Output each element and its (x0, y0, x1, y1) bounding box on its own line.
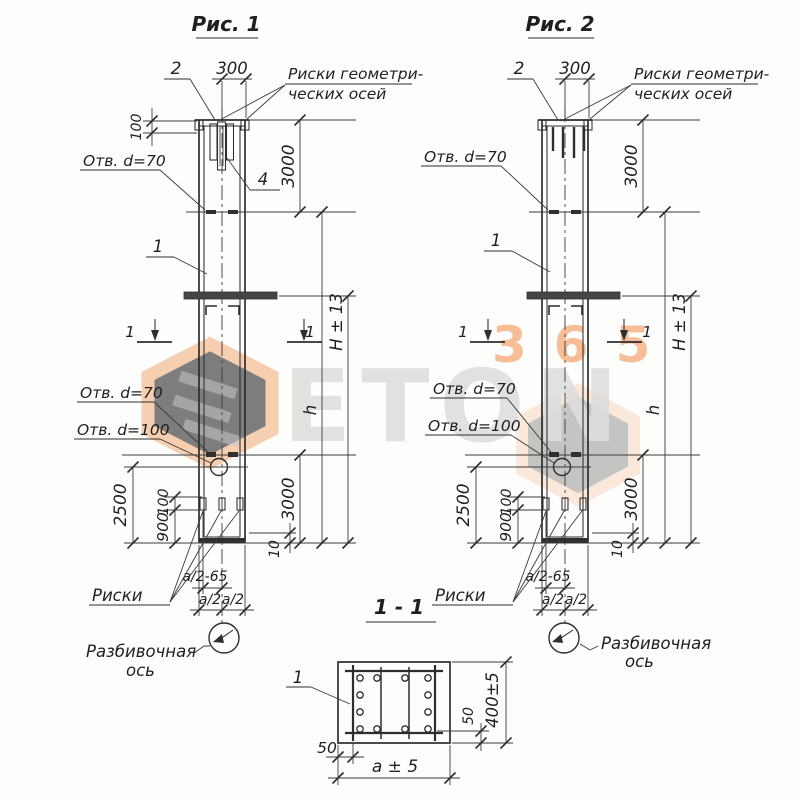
dim-3000-top: 3000 (279, 144, 299, 187)
dim-100-bottom: 100 (156, 489, 172, 516)
dim-H13: H ± 13 (327, 293, 346, 351)
dim-10: 10 (610, 540, 626, 558)
figure-1-layout-axis: Разбивочная ось (86, 623, 239, 680)
layout-axis-label-1: Разбивочная (86, 642, 196, 661)
figure-2-hole-70-upper (529, 210, 700, 214)
risks-label: Риски (435, 586, 486, 605)
dim-a2-right: а/2 (565, 592, 587, 608)
brand-logo-icon (148, 344, 272, 462)
dim-h: h (644, 405, 663, 415)
risks-axes-line2: ческих осей (288, 85, 386, 103)
risks-label: Риски (92, 586, 143, 605)
dim-a: а ± 5 (372, 757, 418, 777)
dim-2500: 2500 (454, 483, 474, 526)
section-dims: 50 400±5 50 а ± 5 (317, 657, 513, 786)
section-title: 1 - 1 (366, 595, 436, 622)
dim-50-left: 50 (317, 739, 337, 757)
dim-a2-left: а/2 (199, 592, 221, 608)
figure-2-risk-marks (543, 498, 586, 510)
section-concrete-outline (338, 662, 450, 743)
pos-1-label: 1 (153, 237, 164, 256)
hole-70-bottom-label: Отв. d=70 (433, 380, 516, 398)
cut-mark-label: 1 (458, 323, 468, 341)
layout-axis-label-2: ось (625, 652, 654, 671)
pos-2-label: 2 (171, 59, 182, 79)
dim-3000-top: 3000 (622, 144, 642, 187)
risks-axes-line1: Риски геометри- (288, 65, 424, 83)
dim-400: 400±5 (483, 672, 502, 728)
drawing-canvas: ETON 365 Рис. 1 (0, 0, 800, 800)
dim-2500: 2500 (111, 483, 131, 526)
dim-100-top: 100 (129, 114, 145, 141)
risks-axes-line1: Риски геометри- (634, 65, 770, 83)
figure-2-layout-axis: Разбивочная ось (549, 623, 711, 671)
watermark: ETON 365 (148, 316, 677, 500)
section-rebar-cage (345, 665, 443, 741)
figure-1-hole-70-upper (186, 210, 356, 214)
dim-3000-bottom: 3000 (622, 477, 642, 520)
pos-1-label: 1 (491, 231, 502, 250)
dim-10: 10 (267, 540, 283, 558)
dim-100-bottom: 100 (499, 489, 515, 516)
figure-1: Рис. 1 (74, 12, 424, 680)
figure-1-dims-bottom: а/2-65 а/2 а/2 (182, 511, 254, 616)
section-callout-pos1: 1 (286, 668, 350, 704)
section-title-text: 1 - 1 (374, 595, 424, 619)
figure-2-title: Рис. 2 (525, 12, 594, 38)
dim-300: 300 (216, 59, 248, 78)
technical-drawing-sheet: ETON 365 Рис. 1 (0, 0, 800, 800)
dim-h: h (301, 405, 320, 415)
hole-70-bottom-label: Отв. d=70 (80, 384, 163, 402)
figure-2-dims-bottom: а/2-65 а/2 а/2 (525, 511, 597, 616)
figure-1-title-text: Рис. 1 (191, 12, 260, 36)
pos-4-label: 4 (258, 170, 269, 189)
dim-300: 300 (559, 59, 591, 78)
layout-axis-label-2: ось (126, 661, 155, 680)
pos-1-label: 1 (293, 668, 304, 687)
cut-mark-label: 1 (125, 323, 135, 341)
cut-mark-label: 1 (642, 323, 652, 341)
dim-H13: H ± 13 (670, 293, 689, 351)
pos-2-label: 2 (514, 59, 525, 79)
figure-2-top-dowel-bars (553, 127, 584, 158)
figure-1-section-cut-marks: 1 1 (125, 319, 322, 342)
dim-50-right: 50 (461, 707, 477, 725)
figure-2-ground-plate (527, 292, 620, 315)
hole-70-top-label: Отв. d=70 (424, 148, 507, 166)
dim-900: 900 (154, 512, 172, 542)
section-view-1-1: 1 - 1 1 (286, 595, 513, 785)
dim-a2-right: а/2 (222, 592, 244, 608)
figure-2-title-text: Рис. 2 (525, 12, 594, 36)
dim-3000-bottom: 3000 (279, 477, 299, 520)
hole-100-label: Отв. d=100 (77, 421, 170, 439)
figure-1-risk-marks (200, 498, 243, 510)
risks-axes-line2: ческих осей (634, 85, 732, 103)
figure-1-ground-plate (184, 292, 277, 315)
hole-100-label: Отв. d=100 (428, 417, 521, 435)
hole-70-top-label: Отв. d=70 (83, 152, 166, 170)
dim-900: 900 (497, 512, 515, 542)
figure-1-title: Рис. 1 (191, 12, 260, 38)
layout-axis-label-1: Разбивочная (601, 634, 711, 653)
dim-a2-left: а/2 (542, 592, 564, 608)
